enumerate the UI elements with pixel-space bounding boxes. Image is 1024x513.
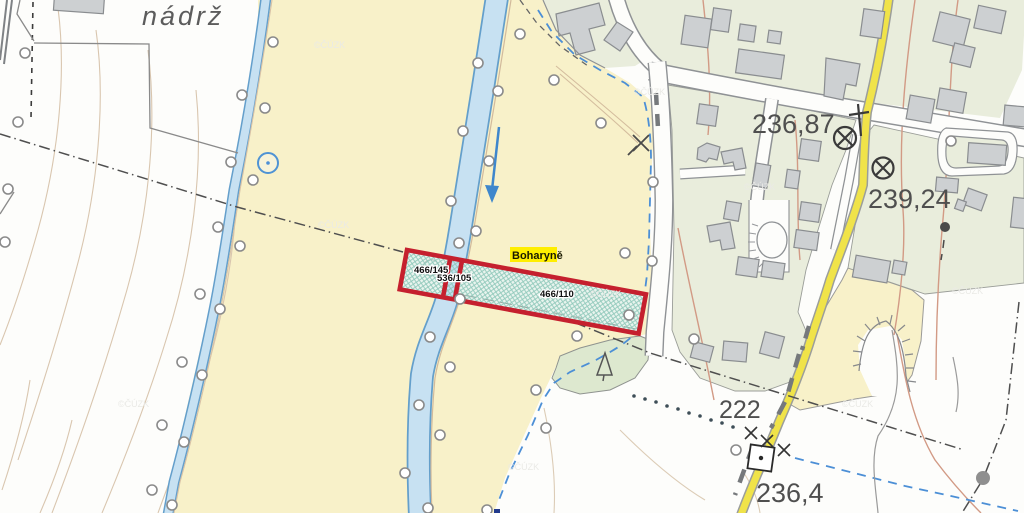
svg-text:466/110: 466/110: [540, 289, 574, 300]
svg-text:nádrž: nádrž: [142, 1, 225, 31]
svg-text:©ČÚZK: ©ČÚZK: [318, 220, 349, 230]
svg-text:©ČÚZK: ©ČÚZK: [118, 399, 149, 409]
svg-text:239,24: 239,24: [868, 184, 951, 214]
svg-text:©ČÚZK: ©ČÚZK: [744, 182, 775, 192]
svg-text:©ČÚZK: ©ČÚZK: [590, 289, 621, 299]
svg-text:©ČÚZK: ©ČÚZK: [314, 40, 345, 50]
svg-text:222: 222: [719, 396, 761, 424]
svg-text:©ČÚZK: ©ČÚZK: [634, 87, 665, 97]
svg-text:236,4: 236,4: [756, 478, 824, 508]
svg-text:236,87: 236,87: [752, 109, 835, 139]
svg-text:Boharyně: Boharyně: [512, 250, 563, 262]
svg-text:©ČÚZK: ©ČÚZK: [842, 399, 873, 409]
svg-text:©ČÚZK: ©ČÚZK: [508, 462, 539, 472]
svg-text:©ČÚZK: ©ČÚZK: [952, 286, 983, 296]
svg-text:536/105: 536/105: [437, 273, 472, 284]
